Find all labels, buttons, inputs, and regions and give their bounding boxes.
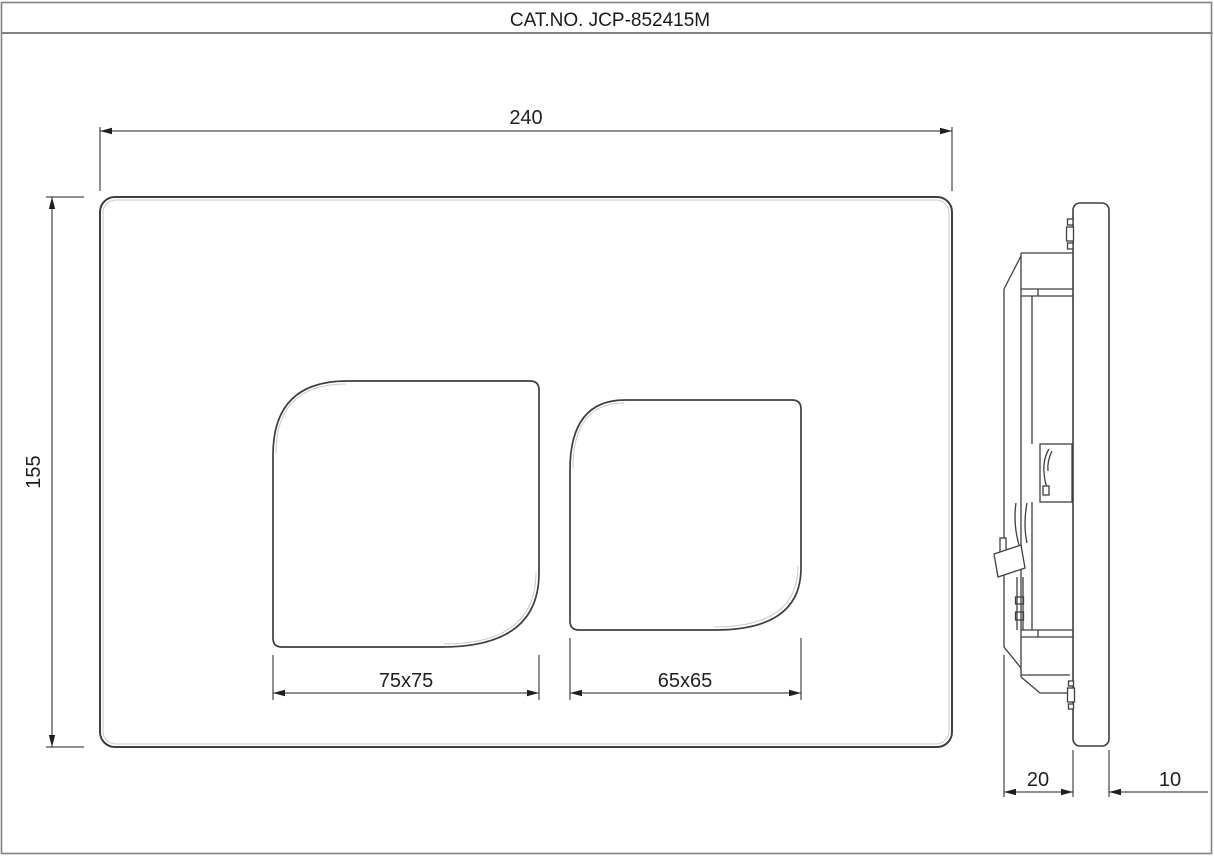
plate-clips-top bbox=[1067, 219, 1074, 249]
side-view: 20 10 bbox=[994, 203, 1208, 797]
dim-plate-thickness-label: 10 bbox=[1159, 769, 1181, 791]
flush-button-large bbox=[273, 381, 539, 647]
extension-lines bbox=[100, 127, 952, 191]
clip bbox=[1068, 688, 1075, 702]
drawing-sheet: CAT.NO. JCP-852415M 240 155 bbox=[0, 0, 1214, 857]
dim-plate-width-label: 240 bbox=[509, 107, 542, 129]
dim-large-button-label: 75x75 bbox=[379, 670, 434, 692]
frame-bottom-bevel bbox=[1004, 647, 1021, 668]
arrowhead-top bbox=[49, 197, 55, 209]
clip bbox=[1068, 243, 1074, 249]
clip bbox=[1068, 219, 1074, 225]
frame-top-rail bbox=[1021, 289, 1073, 296]
flush-rod-foot bbox=[1043, 486, 1049, 495]
dim-frame-depth: 20 bbox=[1004, 655, 1073, 797]
flush-button-small bbox=[570, 400, 801, 630]
plate-side-profile bbox=[1067, 203, 1110, 746]
dim-small-button-label: 65x65 bbox=[658, 670, 713, 692]
clip bbox=[1067, 227, 1074, 241]
dim-plate-height-label: 155 bbox=[23, 455, 45, 488]
technical-drawing: CAT.NO. JCP-852415M 240 155 bbox=[0, 0, 1214, 857]
frame-bottom-rail bbox=[1021, 630, 1073, 637]
arrowhead-bottom bbox=[49, 735, 55, 747]
flush-rod-assembly bbox=[1015, 444, 1072, 545]
dim-plate-height: 155 bbox=[23, 197, 84, 747]
front-view: 240 155 75x75 65x65 bbox=[23, 107, 952, 747]
arrowhead-right bbox=[1061, 789, 1073, 795]
clip bbox=[1069, 681, 1074, 686]
arrowhead-left bbox=[1004, 789, 1016, 795]
dim-plate-thickness: 10 bbox=[1109, 750, 1208, 797]
arrowhead-left bbox=[100, 128, 112, 134]
frame-bottom-step bbox=[1021, 677, 1073, 693]
dim-frame-depth-label: 20 bbox=[1027, 769, 1049, 791]
frame-top-bevel bbox=[1004, 256, 1021, 289]
clip bbox=[1069, 704, 1074, 709]
arrowhead-right bbox=[940, 128, 952, 134]
catalog-number: CAT.NO. JCP-852415M bbox=[510, 10, 710, 31]
arrowhead-left bbox=[1109, 789, 1121, 795]
plate-clips-bottom bbox=[1068, 681, 1075, 709]
dim-plate-width: 240 bbox=[100, 107, 952, 191]
plate-side-outline bbox=[1073, 203, 1109, 746]
